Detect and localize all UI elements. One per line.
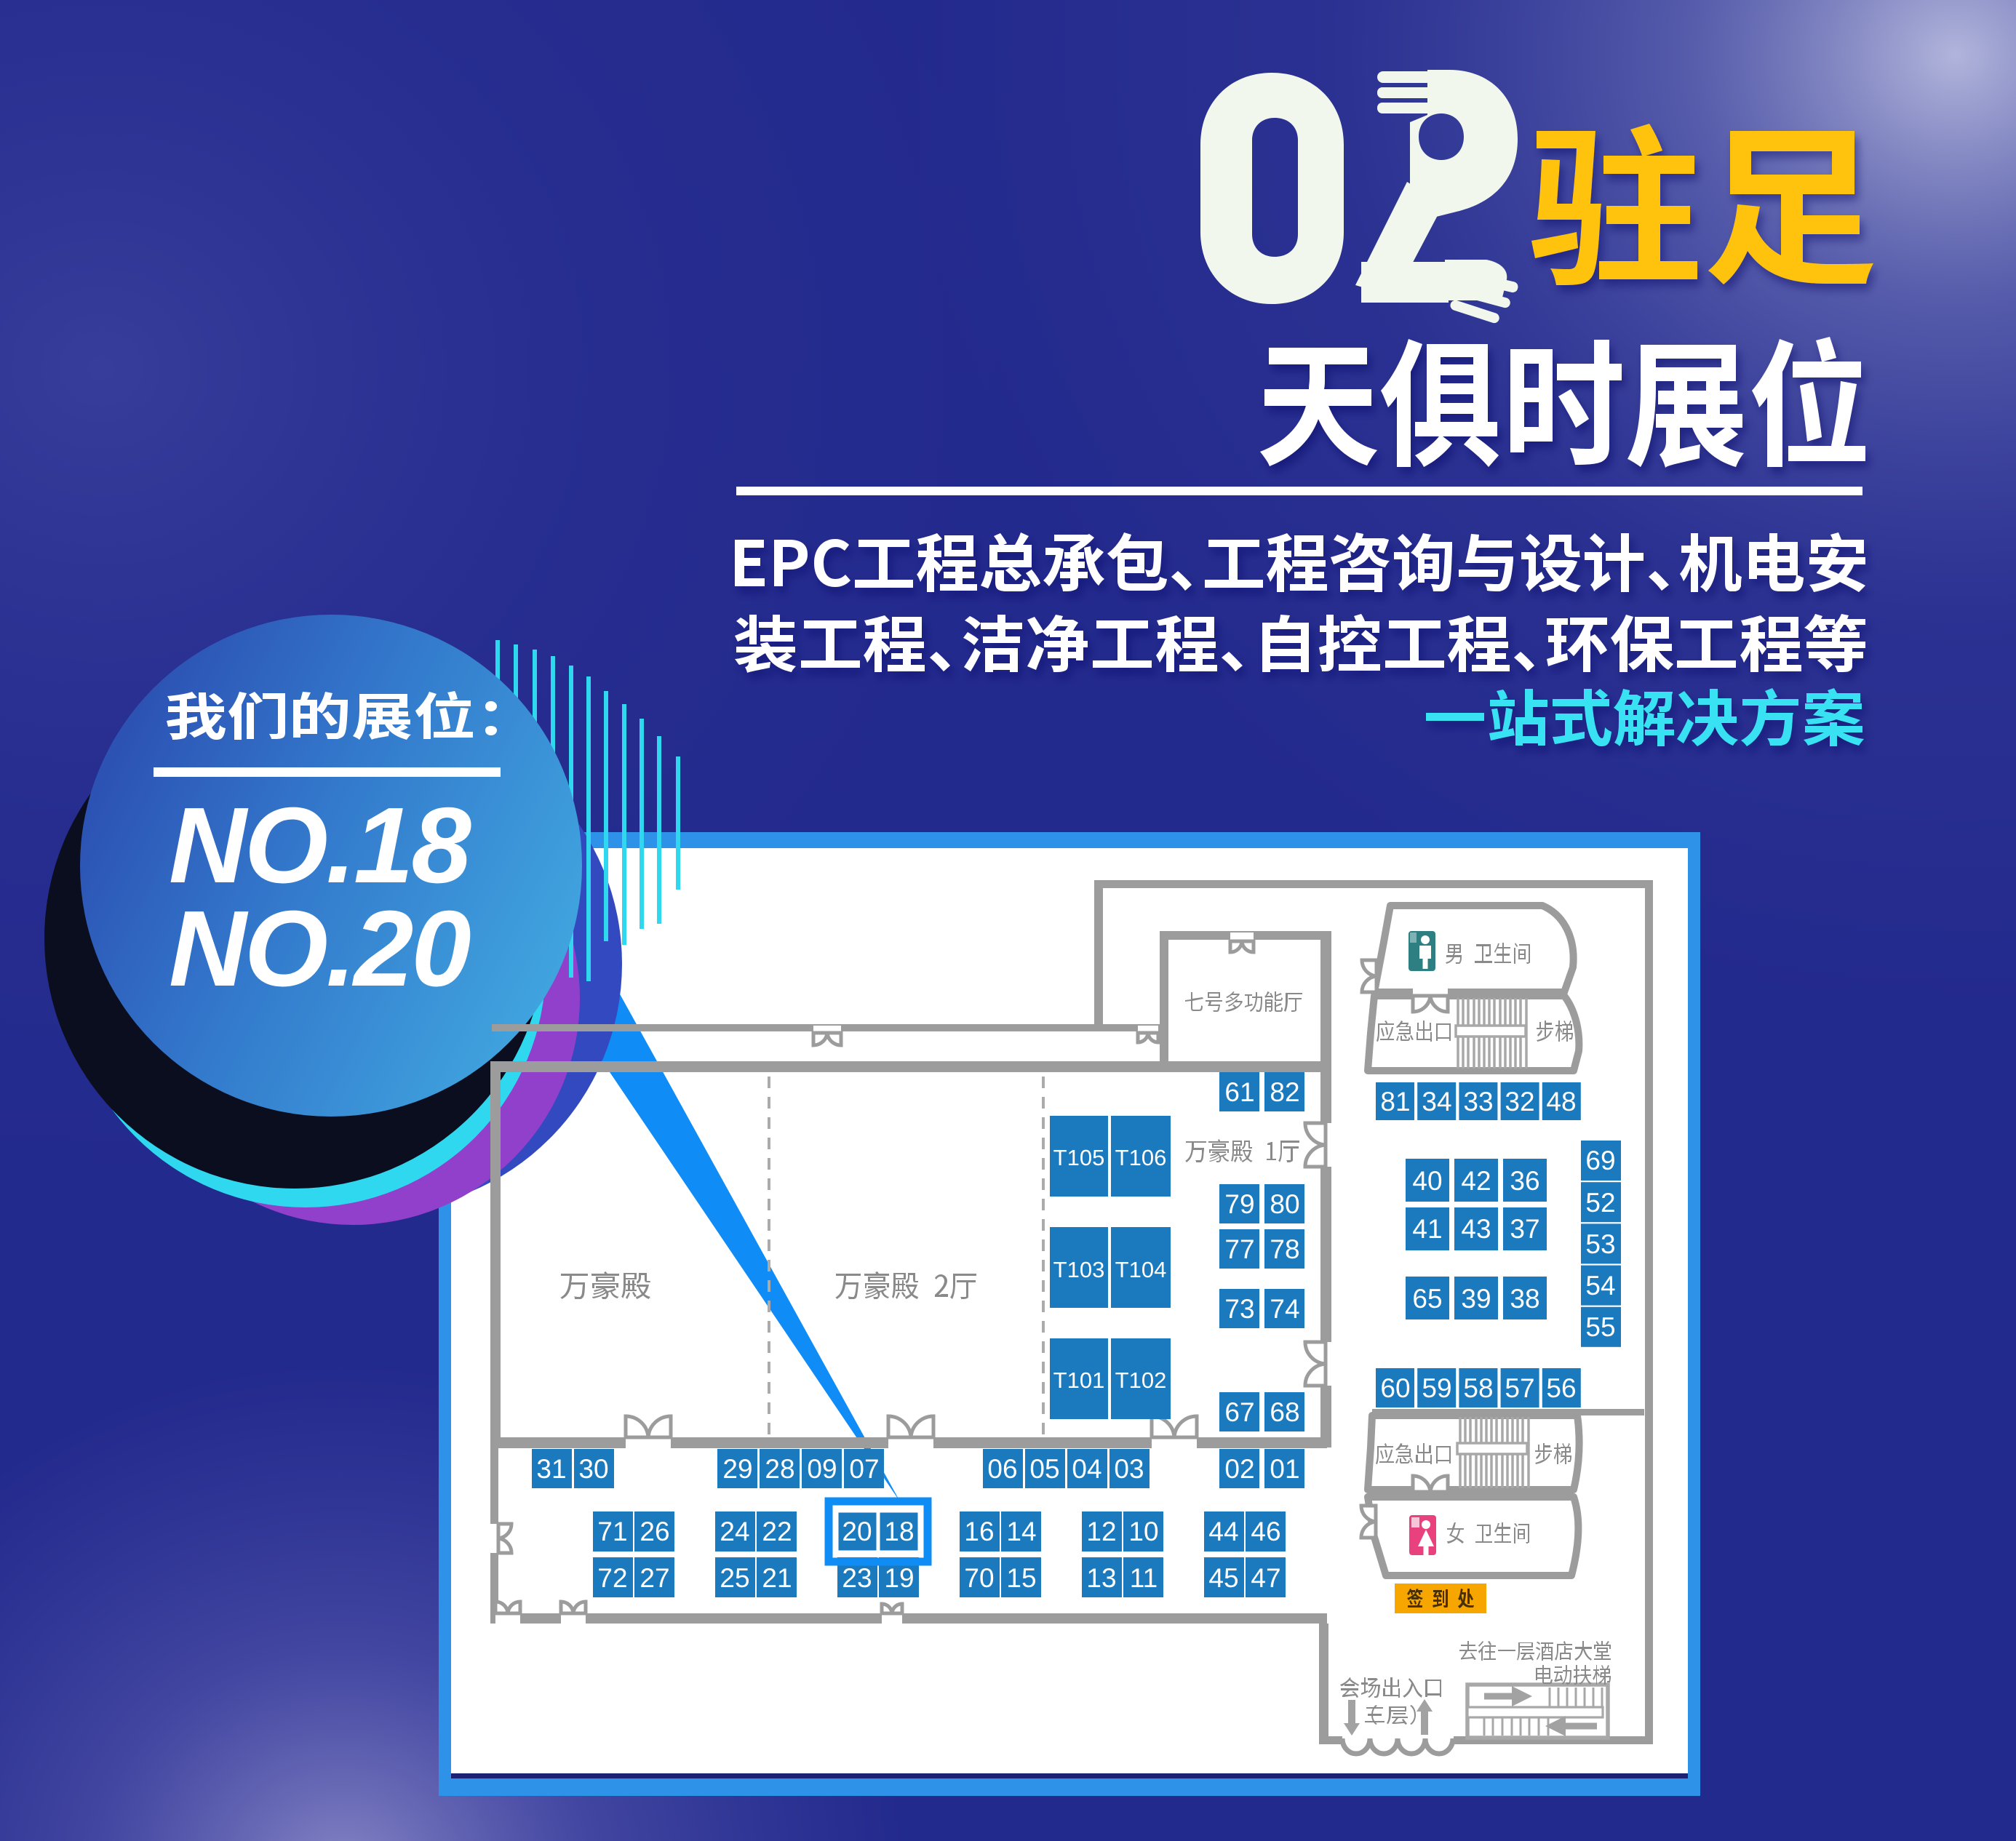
svg-text:61: 61 [1224,1077,1254,1107]
svg-text:14: 14 [1006,1517,1036,1546]
svg-text:65: 65 [1412,1284,1442,1314]
svg-text:04: 04 [1072,1454,1101,1484]
svg-text:52: 52 [1585,1188,1615,1218]
svg-text:55: 55 [1585,1312,1615,1342]
svg-text:T106: T106 [1115,1145,1167,1170]
svg-text:42: 42 [1461,1166,1491,1196]
svg-text:27: 27 [640,1563,669,1593]
svg-text:45: 45 [1208,1563,1238,1593]
svg-text:16: 16 [964,1517,994,1546]
svg-text:06: 06 [987,1454,1017,1484]
svg-text:T101: T101 [1053,1367,1105,1393]
svg-text:03: 03 [1114,1454,1144,1484]
svg-text:T105: T105 [1053,1145,1105,1170]
svg-text:32: 32 [1505,1087,1534,1117]
svg-text:07: 07 [849,1454,879,1484]
svg-text:20: 20 [842,1517,872,1546]
svg-text:28: 28 [765,1454,794,1484]
svg-text:40: 40 [1412,1166,1442,1196]
svg-text:82: 82 [1270,1077,1299,1107]
svg-text:44: 44 [1208,1517,1238,1546]
svg-text:18: 18 [884,1517,914,1546]
svg-text:T102: T102 [1115,1367,1167,1393]
svg-text:10: 10 [1128,1517,1158,1546]
svg-text:15: 15 [1006,1563,1036,1593]
svg-text:26: 26 [640,1517,669,1546]
svg-text:38: 38 [1510,1284,1539,1314]
svg-text:69: 69 [1585,1146,1615,1175]
svg-text:47: 47 [1251,1563,1280,1593]
svg-text:60: 60 [1380,1373,1410,1403]
svg-text:39: 39 [1461,1284,1491,1314]
svg-text:09: 09 [807,1454,837,1484]
svg-text:46: 46 [1251,1517,1280,1546]
svg-text:37: 37 [1510,1214,1539,1244]
svg-text:79: 79 [1224,1189,1254,1219]
svg-text:56: 56 [1546,1373,1576,1403]
svg-text:81: 81 [1380,1087,1410,1117]
svg-text:73: 73 [1224,1294,1254,1324]
svg-text:68: 68 [1270,1397,1299,1427]
svg-text:NO.18: NO.18 [169,786,471,906]
svg-text:58: 58 [1463,1373,1493,1403]
svg-text:25: 25 [720,1563,749,1593]
svg-text:T104: T104 [1115,1257,1167,1282]
svg-text:43: 43 [1461,1214,1491,1244]
svg-text:01: 01 [1270,1454,1299,1484]
svg-text:48: 48 [1546,1087,1576,1117]
svg-text:78: 78 [1270,1234,1299,1264]
svg-text:02: 02 [1224,1454,1254,1484]
svg-text:NO.20: NO.20 [169,889,470,1009]
svg-text:74: 74 [1270,1294,1299,1324]
svg-text:34: 34 [1422,1087,1451,1117]
svg-text:30: 30 [578,1454,608,1484]
svg-text:71: 71 [597,1517,627,1546]
svg-text:72: 72 [597,1563,627,1593]
svg-text:19: 19 [884,1563,914,1593]
svg-text:05: 05 [1029,1454,1059,1484]
svg-text:70: 70 [964,1563,994,1593]
svg-text:77: 77 [1224,1234,1254,1264]
svg-text:23: 23 [842,1563,872,1593]
svg-text:41: 41 [1412,1214,1442,1244]
svg-text:31: 31 [536,1454,566,1484]
svg-text:59: 59 [1422,1373,1451,1403]
svg-text:29: 29 [722,1454,752,1484]
svg-text:12: 12 [1086,1517,1116,1546]
svg-text:33: 33 [1463,1087,1493,1117]
svg-text:53: 53 [1585,1229,1615,1259]
svg-text:36: 36 [1510,1166,1539,1196]
svg-text:57: 57 [1505,1373,1534,1403]
svg-text:80: 80 [1270,1189,1299,1219]
svg-text:13: 13 [1086,1563,1116,1593]
svg-text:22: 22 [762,1517,792,1546]
svg-text:21: 21 [762,1563,792,1593]
svg-text:67: 67 [1224,1397,1254,1427]
svg-text:T103: T103 [1053,1257,1105,1282]
svg-text:11: 11 [1130,1563,1158,1593]
svg-text:24: 24 [720,1517,749,1546]
svg-text:54: 54 [1585,1271,1615,1301]
